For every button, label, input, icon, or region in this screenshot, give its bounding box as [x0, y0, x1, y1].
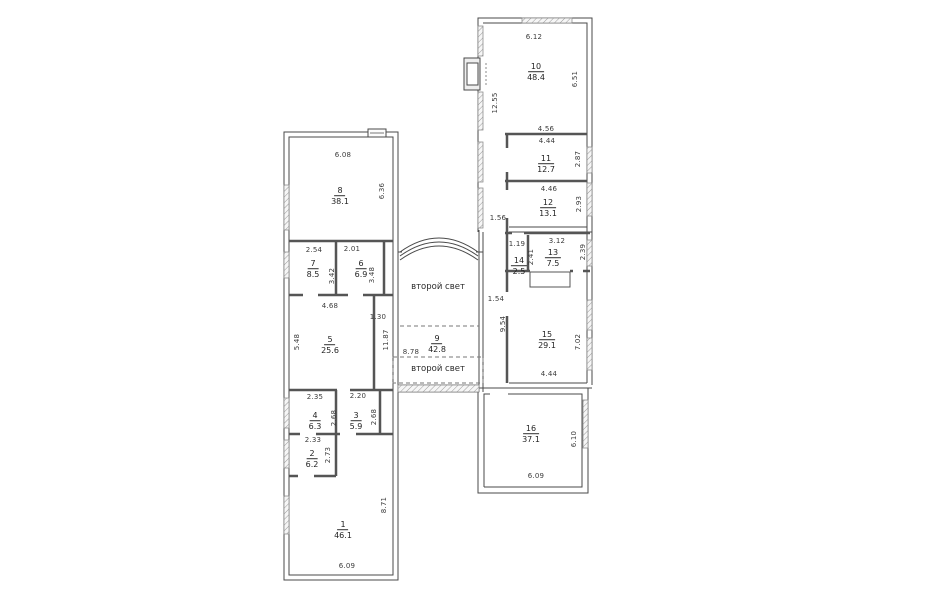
- dimension-label: 1.56: [490, 214, 506, 222]
- room-number: 11: [538, 154, 554, 164]
- room-label-5: 5 25.6: [321, 328, 339, 356]
- room-number: 7: [307, 259, 318, 269]
- dimension-label: 2.54: [306, 246, 322, 254]
- room-area: 42.8: [428, 346, 446, 355]
- room-number: 4: [309, 411, 320, 421]
- room-label-13: 13 7.5: [545, 241, 561, 269]
- floorplan-canvas: 1 46.1 2 6.2 3 5.9 4 6.3 5 25.6 6 6.9 7 …: [0, 0, 926, 606]
- room-label-3: 3 5.9: [350, 404, 363, 432]
- dimension-label: 5.48: [293, 334, 301, 350]
- dimension-label: 6.08: [335, 151, 351, 159]
- dimension-label: 2.01: [344, 245, 360, 253]
- dimension-label: 11.87: [382, 329, 390, 350]
- dimension-label: 2.20: [350, 392, 366, 400]
- dimension-label: 6.36: [378, 183, 386, 199]
- room-number: 10: [528, 62, 544, 72]
- dimension-label: 2.73: [324, 447, 332, 463]
- room-number: 14: [511, 256, 527, 266]
- room-label-12: 12 13.1: [539, 191, 557, 219]
- room-number: 12: [540, 198, 556, 208]
- dimension-label: 4.56: [538, 125, 554, 133]
- second-light-label-upper: второй свет: [411, 282, 465, 292]
- dimension-label: 7.02: [574, 334, 582, 350]
- room-number: 1: [337, 520, 348, 530]
- floorplan-drawing: [0, 0, 926, 606]
- room-area: 46.1: [334, 532, 352, 541]
- dimension-label: 2.39: [579, 244, 587, 260]
- room-area: 2.5: [511, 268, 527, 277]
- dimension-label: 6.09: [339, 562, 355, 570]
- room-number: 15: [539, 330, 555, 340]
- vent: [368, 129, 386, 137]
- room-label-7: 7 8.5: [307, 252, 320, 280]
- room-label-2: 2 6.2: [306, 442, 319, 470]
- dimension-label: 2.87: [574, 151, 582, 167]
- outer-walls: [284, 18, 592, 580]
- dimension-label: 6.10: [570, 431, 578, 447]
- room-label-11: 11 12.7: [537, 147, 555, 175]
- dimension-label: 6.12: [526, 33, 542, 41]
- room-number: 5: [324, 335, 335, 345]
- dimension-label: 3.48: [368, 267, 376, 283]
- room-area: 37.1: [522, 436, 540, 445]
- room-label-8: 8 38.1: [331, 179, 349, 207]
- room-label-9: 9 42.8: [428, 327, 446, 355]
- dimension-label: 12.55: [491, 92, 499, 113]
- dimension-label: 2.41: [527, 249, 535, 265]
- room-area: 6.2: [306, 461, 319, 470]
- room-label-1: 1 46.1: [334, 513, 352, 541]
- room-number: 6: [355, 259, 366, 269]
- room-label-6: 6 6.9: [355, 252, 368, 280]
- room-area: 7.5: [545, 260, 561, 269]
- room-label-14: 14 2.5: [511, 249, 527, 277]
- room-area: 8.5: [307, 271, 320, 280]
- dimension-label: 2.93: [575, 196, 583, 212]
- room-area: 13.1: [539, 210, 557, 219]
- room-area: 5.9: [350, 423, 363, 432]
- room-area: 29.1: [538, 342, 556, 351]
- dimension-label: 6.51: [571, 71, 579, 87]
- room-number: 9: [431, 334, 442, 344]
- dimension-label: 1.30: [370, 313, 386, 321]
- dimension-label: 1.19: [509, 240, 525, 248]
- second-light-label-lower: второй свет: [411, 364, 465, 374]
- dimension-label: 4.68: [322, 302, 338, 310]
- dimension-label: 4.46: [541, 185, 557, 193]
- room-label-4: 4 6.3: [309, 404, 322, 432]
- room-area: 48.4: [527, 74, 545, 83]
- dimension-label: 3.42: [328, 268, 336, 284]
- room-number: 3: [350, 411, 361, 421]
- arch: [398, 238, 483, 260]
- dimension-label: 3.12: [549, 237, 565, 245]
- dimension-label: 8.71: [380, 497, 388, 513]
- wall-recess: [530, 272, 570, 287]
- dimension-label: 6.09: [528, 472, 544, 480]
- dimension-label: 2.35: [307, 393, 323, 401]
- room-label-16: 16 37.1: [522, 417, 540, 445]
- dimension-label: 4.44: [539, 137, 555, 145]
- fireplace: [464, 58, 486, 90]
- dimension-label: 2.33: [305, 436, 321, 444]
- room-number: 16: [523, 424, 539, 434]
- dimension-label: 4.44: [541, 370, 557, 378]
- room-label-10: 10 48.4: [527, 55, 545, 83]
- room-number: 2: [306, 449, 317, 459]
- room-number: 13: [545, 248, 561, 258]
- room-area: 6.9: [355, 271, 368, 280]
- dimension-label: 1.54: [488, 295, 504, 303]
- dimension-label: 9.54: [499, 316, 507, 332]
- room-area: 12.7: [537, 166, 555, 175]
- room-area: 38.1: [331, 198, 349, 207]
- room-label-15: 15 29.1: [538, 323, 556, 351]
- room-area: 25.6: [321, 347, 339, 356]
- dimension-label: 8.78: [403, 348, 419, 356]
- dimension-label: 2.68: [330, 410, 338, 426]
- dimension-label: 2.68: [370, 409, 378, 425]
- room-area: 6.3: [309, 423, 322, 432]
- room-number: 8: [334, 186, 345, 196]
